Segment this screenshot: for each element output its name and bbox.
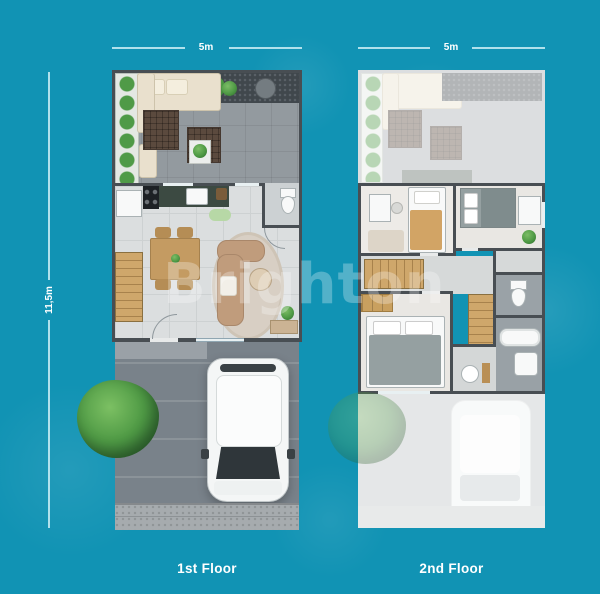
toilet-bowl [281, 196, 295, 214]
potted-plant [193, 144, 207, 158]
kitchen-sink [186, 188, 208, 205]
entry-pad [115, 342, 207, 359]
pillow [373, 321, 401, 335]
cushion [166, 79, 188, 95]
dimension-width-floor2: 5m [358, 41, 545, 55]
dimension-width-floor1: 5m [112, 41, 302, 55]
counter-item [216, 188, 227, 200]
window [542, 202, 545, 228]
staircase-upper-flight [364, 259, 424, 289]
outer-wall [358, 183, 361, 394]
dining-chair [155, 227, 171, 238]
second-floor-plan [358, 70, 545, 528]
interior-wall [361, 253, 453, 256]
dimension-label: 5m [430, 42, 472, 53]
outer-wall [358, 183, 545, 186]
bedroom-2 [361, 186, 453, 256]
dining-table [150, 238, 200, 280]
desk-chair [391, 202, 403, 214]
staircase-lower-flight [468, 294, 495, 346]
dimension-line [472, 47, 545, 49]
interior-wall [453, 186, 456, 256]
void-over-terrace [358, 70, 545, 186]
dimension-depth: 11,5m [42, 72, 56, 528]
car-roof [216, 375, 282, 447]
door-opening [462, 248, 478, 251]
car-mirror [201, 449, 209, 459]
master-bedroom [361, 294, 450, 391]
wc [453, 347, 496, 391]
dimension-line [229, 47, 302, 49]
void-overlay [358, 70, 545, 186]
planter-strip [115, 73, 139, 185]
terrace [115, 73, 299, 185]
window [235, 183, 259, 186]
kitchen-counter [159, 186, 229, 207]
interior-wall [450, 291, 453, 391]
pillow [464, 193, 478, 208]
stove [143, 186, 159, 209]
blanket [410, 210, 442, 250]
pillow [414, 191, 440, 204]
dining-chair [177, 227, 193, 238]
car-rear-window [220, 364, 276, 372]
tile-mat [143, 110, 179, 150]
indoor-plant [522, 230, 536, 244]
dimension-line [112, 47, 185, 49]
single-bed [408, 187, 446, 253]
interior-wall [496, 315, 542, 318]
wardrobe [518, 196, 541, 225]
door-opening [420, 253, 438, 256]
interior-wall [493, 250, 496, 344]
door-opening [422, 291, 440, 294]
bedroom-3 [456, 186, 542, 250]
outer-wall [112, 70, 302, 73]
bathtub [499, 328, 541, 347]
shrub [222, 81, 237, 96]
car-hood [214, 481, 282, 495]
dimension-label: 11,5m [34, 283, 64, 317]
table-plant [171, 254, 180, 263]
kitchen-mat [209, 209, 231, 221]
staircase [115, 252, 143, 322]
powder-room [262, 183, 299, 228]
interior-wall [496, 272, 542, 275]
bath-mat [482, 363, 490, 383]
dimension-line [48, 320, 50, 528]
dimension-line [358, 47, 430, 49]
desk [369, 194, 391, 222]
car-mirror [287, 449, 295, 459]
vanity-sink [514, 352, 538, 376]
pillow [405, 321, 433, 335]
bathroom-1 [496, 275, 542, 315]
coffee-table [249, 268, 272, 291]
blanket [481, 189, 515, 227]
bedroom-rug [368, 230, 404, 252]
refrigerator [116, 190, 142, 217]
first-floor-plan [112, 70, 302, 528]
double-bed [366, 316, 445, 388]
outer-wall [299, 70, 302, 342]
gravel-strip [115, 503, 299, 530]
floorplan-scene: Brighton 5m 5m 11,5m [0, 0, 600, 594]
stepping-stone [255, 78, 276, 99]
car [207, 358, 289, 502]
car-windshield [216, 447, 280, 479]
blanket [369, 335, 441, 385]
bathroom-2 [496, 318, 542, 391]
first-floor-label: 1st Floor [112, 561, 302, 576]
dimension-line [48, 72, 50, 280]
gray-bed [460, 188, 516, 228]
pillow [464, 209, 478, 224]
planter-box [189, 140, 211, 164]
toilet-bowl [511, 288, 526, 307]
indoor-plant [281, 306, 294, 320]
sofa-pillow [220, 276, 237, 296]
second-floor-label: 2nd Floor [358, 561, 545, 576]
dining-chair [177, 279, 193, 290]
interior-wall [453, 344, 496, 347]
outer-wall [112, 70, 115, 342]
powder-room-wall [262, 183, 265, 228]
round-sink [461, 365, 479, 383]
console-table [270, 320, 298, 334]
dimension-label: 5m [185, 42, 227, 53]
dining-chair [155, 279, 171, 290]
wardrobe-tan [361, 294, 393, 312]
